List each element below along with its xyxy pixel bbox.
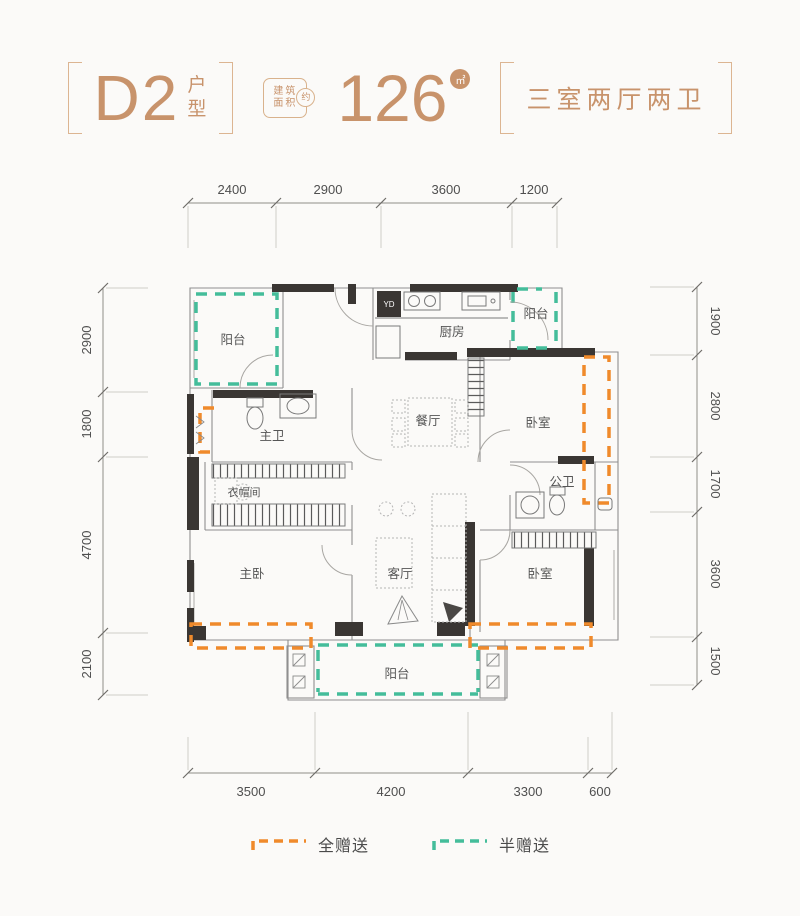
dim-top-1: 2400 (218, 182, 247, 197)
room-label-common-bath: 公卫 (549, 475, 574, 489)
plan-name: D2 (94, 66, 180, 130)
dim-right-4: 3600 (708, 560, 723, 589)
wardrobes (212, 358, 596, 548)
room-label-living: 客厅 (387, 566, 412, 581)
room-label-master-bath: 主卫 (259, 429, 284, 443)
room-label-dining: 餐厅 (415, 413, 440, 428)
room-label-bedroom-right-bottom: 卧室 (527, 566, 552, 581)
plan-suffix-char-2: 型 (187, 98, 207, 122)
area-value: 126 (337, 65, 447, 131)
area-unit-badge: ㎡ (450, 69, 470, 89)
seal-circle: 约 (296, 88, 315, 107)
dim-right-3: 1700 (708, 470, 723, 499)
dim-left-3: 4700 (79, 531, 94, 560)
legend-item-full-gift: 全赠送 (250, 832, 369, 856)
room-label-kitchen: 厨房 (439, 324, 464, 339)
dim-bottom-3: 3300 (514, 784, 543, 799)
living-set (376, 494, 466, 622)
layout-desc: 三室两厅两卫 (526, 80, 706, 116)
dim-left-2: 1800 (79, 410, 94, 439)
half-gift-swatch (431, 835, 489, 853)
room-label-balcony-bottom: 阳台 (384, 666, 409, 681)
plan-suffix: 户 型 (187, 74, 207, 122)
master-bath-fixtures (247, 394, 316, 429)
dim-right-2: 2800 (708, 392, 723, 421)
seal-line-2: 面积 (273, 98, 297, 111)
dim-left-4: 2100 (79, 650, 94, 679)
legend: 全赠送 半赠送 (0, 832, 800, 856)
full-gift-areas (191, 357, 609, 648)
floorplan-page: D2 户 型 建筑 面积 约 126 ㎡ 三室两厅两卫 (0, 0, 800, 911)
room-label-master-bedroom: 主卧 (239, 567, 264, 581)
plan-name-box: D2 户 型 (68, 62, 234, 134)
room-label-balcony-top-right: 阳台 (523, 306, 548, 321)
dim-top-2: 2900 (314, 182, 343, 197)
solid-walls (187, 284, 595, 642)
room-label-closet: 衣帽间 (228, 485, 261, 499)
common-bath-fixtures (516, 487, 612, 518)
legend-full-gift-label: 全赠送 (318, 832, 369, 856)
dim-bottom-2: 4200 (377, 784, 406, 799)
dim-top-3: 3600 (432, 182, 461, 197)
legend-item-half-gift: 半赠送 (431, 832, 550, 856)
area-group: 126 ㎡ (337, 65, 470, 131)
plan-suffix-char-1: 户 (187, 74, 207, 98)
dim-right-1: 1900 (708, 307, 723, 336)
dim-bottom-1: 3500 (237, 784, 266, 799)
dim-right-5: 1500 (708, 647, 723, 676)
fridge-label: YD (383, 300, 394, 309)
dimension-bottom: 3500 4200 3300 600 (183, 712, 617, 799)
full-gift-swatch (250, 835, 308, 853)
room-label-balcony-top-left: 阳台 (220, 332, 245, 347)
room-label-bedroom-right-top: 卧室 (525, 415, 550, 430)
dimension-top: 2400 2900 3600 1200 (183, 182, 562, 248)
layout-desc-box: 三室两厅两卫 (500, 62, 732, 134)
dim-top-4: 1200 (520, 182, 549, 197)
dim-left-1: 2900 (79, 326, 94, 355)
living-plant-tv (388, 596, 463, 624)
dim-bottom-4: 600 (589, 784, 611, 799)
legend-half-gift-label: 半赠送 (499, 832, 550, 856)
seal-line-1: 建筑 (273, 86, 297, 99)
dimension-right: 1900 2800 1700 3600 1500 (650, 282, 723, 690)
area-seal: 建筑 面积 约 (263, 78, 307, 118)
dimension-left: 2900 1800 4700 2100 (79, 283, 148, 700)
header: D2 户 型 建筑 面积 约 126 ㎡ 三室两厅两卫 (0, 52, 800, 144)
